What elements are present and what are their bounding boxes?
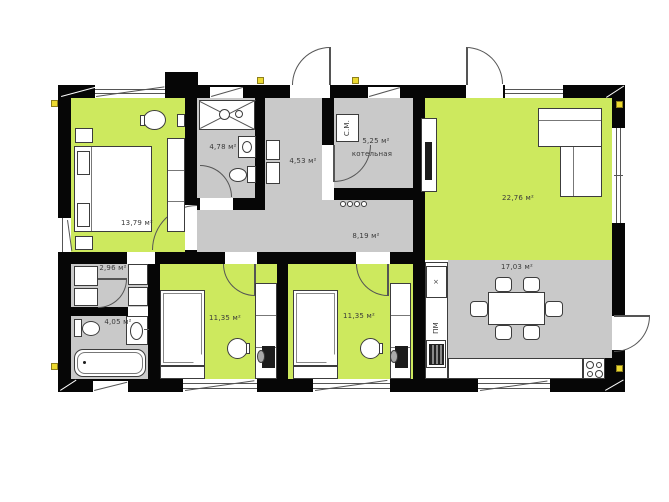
chair-back <box>140 115 145 126</box>
wardrobe <box>167 138 185 232</box>
area-label-living-room: 22,76 м² <box>502 194 534 202</box>
dining-chair <box>495 277 512 292</box>
closet-shelf <box>74 288 98 306</box>
shelf-line <box>391 315 410 316</box>
hall-cabinet <box>266 140 280 160</box>
closet-shelf <box>128 287 148 306</box>
toilet-tank <box>74 319 82 337</box>
window <box>505 85 563 98</box>
corner-marker-yellow <box>616 101 623 108</box>
pillow <box>77 151 90 175</box>
wall-mirror <box>177 114 185 127</box>
door-opening <box>127 252 155 264</box>
wall-segment <box>58 252 127 264</box>
closet-shelf <box>74 266 98 286</box>
bathtub-drain <box>83 361 86 364</box>
corner-marker-yellow <box>51 363 58 370</box>
area-label-boiler-room: 5,25 м² <box>362 137 389 145</box>
wall-segment <box>334 188 413 200</box>
chair <box>360 338 381 359</box>
window-line <box>478 383 550 384</box>
bed-footboard <box>160 366 205 379</box>
wall-segment <box>255 98 265 198</box>
burner <box>596 362 602 368</box>
tv <box>425 142 432 180</box>
wall-chimney <box>165 72 198 86</box>
toilet-tank <box>247 166 256 183</box>
fridge-label: × <box>433 278 439 286</box>
desk-monitor <box>390 350 398 363</box>
blanket-fold <box>324 352 337 365</box>
nightstand <box>75 236 93 250</box>
coat-hook <box>347 201 353 207</box>
desk-monitor <box>257 350 265 363</box>
closet-shelf <box>128 264 148 285</box>
area-label-bathroom-1: 4,78 м² <box>209 143 236 151</box>
room-name-boiler: котельная <box>352 150 392 158</box>
blanket-fold <box>191 352 204 365</box>
area-label-bedroom-2: 11,35 м² <box>209 314 241 322</box>
chair-back <box>246 343 250 354</box>
shower-head <box>235 110 243 118</box>
window-line <box>95 89 165 90</box>
area-label-closet: 2,96 м² <box>99 264 126 272</box>
entrance-door-opening <box>466 85 503 98</box>
coat-hook <box>361 201 367 207</box>
floor-plan: С.М. <box>0 0 669 502</box>
door-opening <box>200 198 233 210</box>
shower-drain <box>219 109 230 120</box>
bathtub <box>74 349 146 377</box>
window-line <box>62 218 63 252</box>
dining-chair <box>523 277 540 292</box>
corner-marker-yellow <box>616 365 623 372</box>
nightstand <box>75 128 93 143</box>
corner-marker-yellow <box>352 77 359 84</box>
pillow <box>77 203 90 227</box>
area-label-bedroom-3: 11,35 м² <box>343 312 375 320</box>
door-opening <box>128 307 148 316</box>
hall-cabinet <box>266 162 280 184</box>
washing-machine-label: С.М. <box>343 120 351 136</box>
stove <box>583 358 605 379</box>
wall-segment <box>605 358 612 379</box>
wall-segment <box>148 252 160 379</box>
shelf-line <box>256 315 276 316</box>
wall-segment <box>257 252 356 264</box>
burner <box>595 370 603 378</box>
door-swing <box>614 316 650 352</box>
dishwasher-label: ПМ <box>432 322 440 334</box>
area-label-corridor: 8,19 м² <box>352 232 379 240</box>
area-label-hallway: 4,53 м² <box>289 157 316 165</box>
sofa-l-horizontal <box>538 108 602 147</box>
wall-segment <box>322 98 334 145</box>
sink <box>238 136 256 158</box>
bed-footboard <box>293 366 338 379</box>
burner <box>587 371 593 377</box>
chair-back <box>379 343 383 354</box>
bathtub-inner <box>77 352 143 374</box>
coat-hook <box>340 201 346 207</box>
corner-marker-yellow <box>257 77 264 84</box>
door-opening <box>356 252 390 264</box>
window-line <box>614 175 623 176</box>
shelf-line <box>168 201 184 202</box>
corner-marker-yellow <box>51 100 58 107</box>
wall-segment <box>390 252 413 264</box>
entrance-door-swing <box>466 47 503 84</box>
sink-tap <box>144 329 149 330</box>
dining-chair <box>495 325 512 340</box>
sofa-line <box>573 147 574 196</box>
burner <box>586 361 594 369</box>
bed-line <box>91 147 92 231</box>
sofa-line <box>539 120 601 121</box>
entrance-door-swing <box>292 47 330 85</box>
toilet-bowl <box>82 321 100 336</box>
chair <box>143 110 166 130</box>
coat-hook <box>354 201 360 207</box>
kitchen-sink <box>426 340 446 368</box>
window-line <box>505 93 563 94</box>
dining-chair <box>470 301 488 317</box>
sink-basin <box>429 344 444 365</box>
sink-basin <box>130 322 143 340</box>
area-label-bedroom-1: 13,79 м² <box>121 219 153 227</box>
shelf-line <box>168 170 184 171</box>
window-line <box>183 383 257 384</box>
toilet-bowl <box>229 168 247 182</box>
dining-chair <box>545 301 563 317</box>
sofa-l-vertical <box>560 146 602 197</box>
area-label-bathroom-2: 4,05 м² <box>104 318 131 326</box>
door-opening <box>225 252 257 264</box>
chair <box>227 338 248 359</box>
area-label-kitchen-dining: 17,03 м² <box>501 263 533 271</box>
dining-chair <box>523 325 540 340</box>
wall-segment <box>277 252 288 379</box>
dining-table <box>488 292 545 325</box>
entrance-door-opening <box>290 85 330 98</box>
sink-basin <box>242 141 252 153</box>
window-line <box>505 89 563 90</box>
kitchen-counter-bottom <box>448 358 583 379</box>
